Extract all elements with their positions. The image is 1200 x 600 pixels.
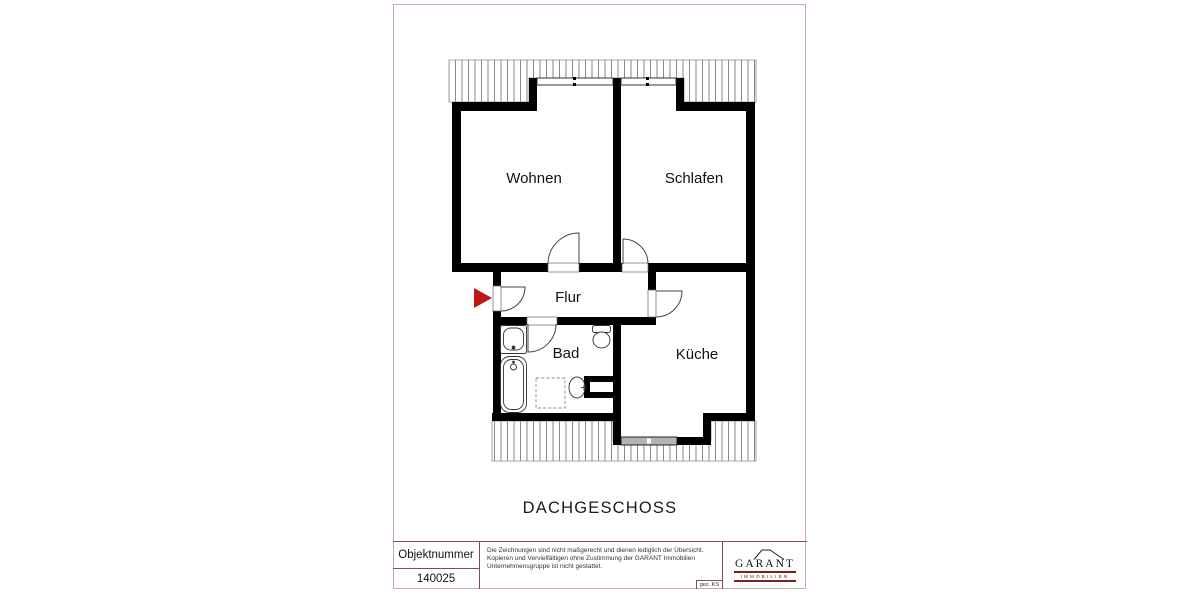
garant-logo: GARANT IMMOBILIEN	[734, 549, 796, 583]
room-label-schlafen: Schlafen	[665, 170, 723, 187]
room-label-kueche: Küche	[676, 346, 719, 363]
roof-icon	[753, 549, 785, 560]
logo-cell: GARANT IMMOBILIEN	[723, 542, 807, 589]
walls	[452, 78, 755, 445]
kueche-door	[656, 291, 682, 317]
disclaimer-line-2: Kopieren und Vervielfältigen ohne Zustim…	[487, 555, 715, 563]
disclaimer-line-1: Die Zeichnungen sind nicht maßgerecht un…	[487, 547, 715, 555]
logo-rule-bottom	[734, 580, 796, 582]
entrance-arrow-icon	[474, 288, 492, 308]
schlafen-door	[623, 239, 648, 264]
washbasin	[501, 326, 527, 354]
title-block: Objektnummer 140025 Die Zeichnungen sind…	[393, 541, 807, 589]
disclaimer-cell: Die Zeichnungen sind nicht maßgerecht un…	[480, 542, 723, 589]
fixtures	[501, 326, 611, 413]
signature-box: gez. KS	[696, 580, 722, 589]
wohnen-door	[548, 233, 579, 264]
disclaimer-line-3: Unternehmensgruppe ist nicht gestattet.	[487, 563, 715, 571]
object-number-value: 140025	[393, 569, 479, 589]
window-schlafen	[621, 77, 676, 86]
logo-rule-top	[734, 571, 796, 573]
entrance-door	[501, 287, 525, 311]
logo-brand: GARANT	[734, 559, 796, 570]
logo-tagline: IMMOBILIEN	[734, 574, 796, 579]
window-wohnen	[537, 77, 613, 86]
vent-shaft	[584, 376, 613, 398]
toilet-top	[593, 326, 611, 349]
drawing-canvas: Wohnen Schlafen Flur Bad Küche DACHGESCH…	[0, 0, 1200, 600]
room-label-flur: Flur	[555, 289, 581, 306]
bathtub	[501, 357, 527, 413]
room-label-bad: Bad	[553, 345, 580, 362]
room-label-wohnen: Wohnen	[506, 170, 562, 187]
object-number-cell: Objektnummer 140025	[393, 542, 480, 589]
shower-outline	[536, 378, 565, 408]
floor-title: DACHGESCHOSS	[393, 499, 807, 518]
object-number-label: Objektnummer	[393, 542, 479, 569]
window-kueche	[621, 437, 677, 445]
